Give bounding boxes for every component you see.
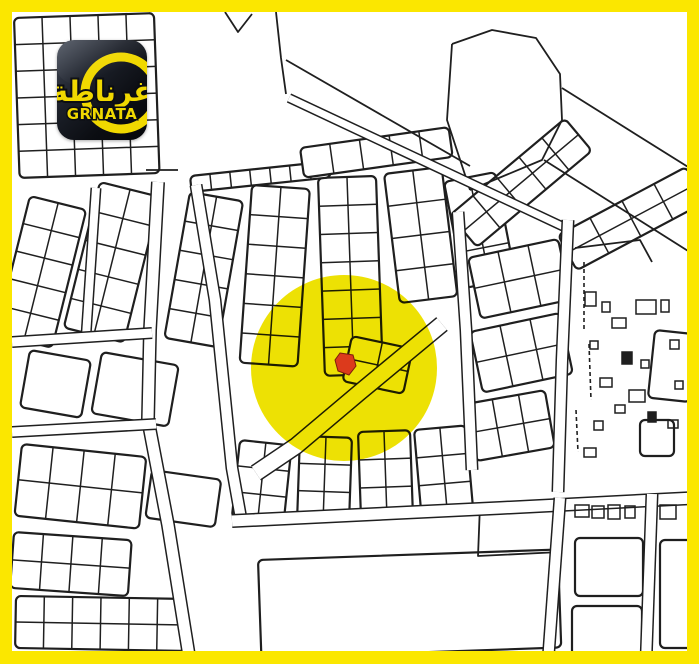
- boundary-line: [276, 12, 286, 94]
- plot-block: [91, 352, 179, 427]
- building: [660, 505, 676, 519]
- boundary-line: [225, 12, 252, 32]
- plot-block: [575, 538, 643, 596]
- brand-logo-graphic: غرناطة GRNATA: [57, 40, 147, 140]
- plot-block: [558, 167, 687, 270]
- building: [602, 302, 610, 312]
- plot-block: [466, 390, 555, 461]
- road-surface: [646, 494, 652, 651]
- dashed-lines-layer: [576, 262, 591, 452]
- building: [584, 448, 596, 457]
- brand-logo-arabic-text: غرناطة: [57, 75, 147, 108]
- plot-block: [15, 596, 186, 651]
- buildings-layer: [575, 292, 683, 519]
- building: [661, 300, 669, 312]
- building: [629, 390, 645, 402]
- dashed-line: [576, 410, 578, 452]
- building: [585, 292, 596, 306]
- plot-block: [648, 330, 687, 402]
- building: [600, 378, 612, 387]
- building: [615, 405, 625, 413]
- plot-block: [660, 540, 687, 648]
- brand-logo: غرناطة GRNATA: [57, 40, 147, 140]
- building: [612, 318, 626, 328]
- plot-block: [20, 350, 91, 418]
- building: [594, 421, 603, 430]
- building: [622, 352, 632, 364]
- plot-block: [572, 606, 642, 651]
- plot-block: [14, 444, 146, 529]
- flyer-frame: غرناطة GRNATA: [0, 0, 699, 664]
- brand-logo-latin-text: GRNATA: [67, 105, 138, 123]
- plot-block: [12, 532, 132, 596]
- building: [641, 360, 649, 368]
- building: [590, 341, 598, 349]
- plot-block: [640, 420, 674, 456]
- dashed-line: [589, 344, 591, 400]
- boundary-line: [447, 44, 470, 190]
- plot-block: [258, 550, 561, 651]
- building: [648, 412, 656, 422]
- building: [636, 300, 656, 314]
